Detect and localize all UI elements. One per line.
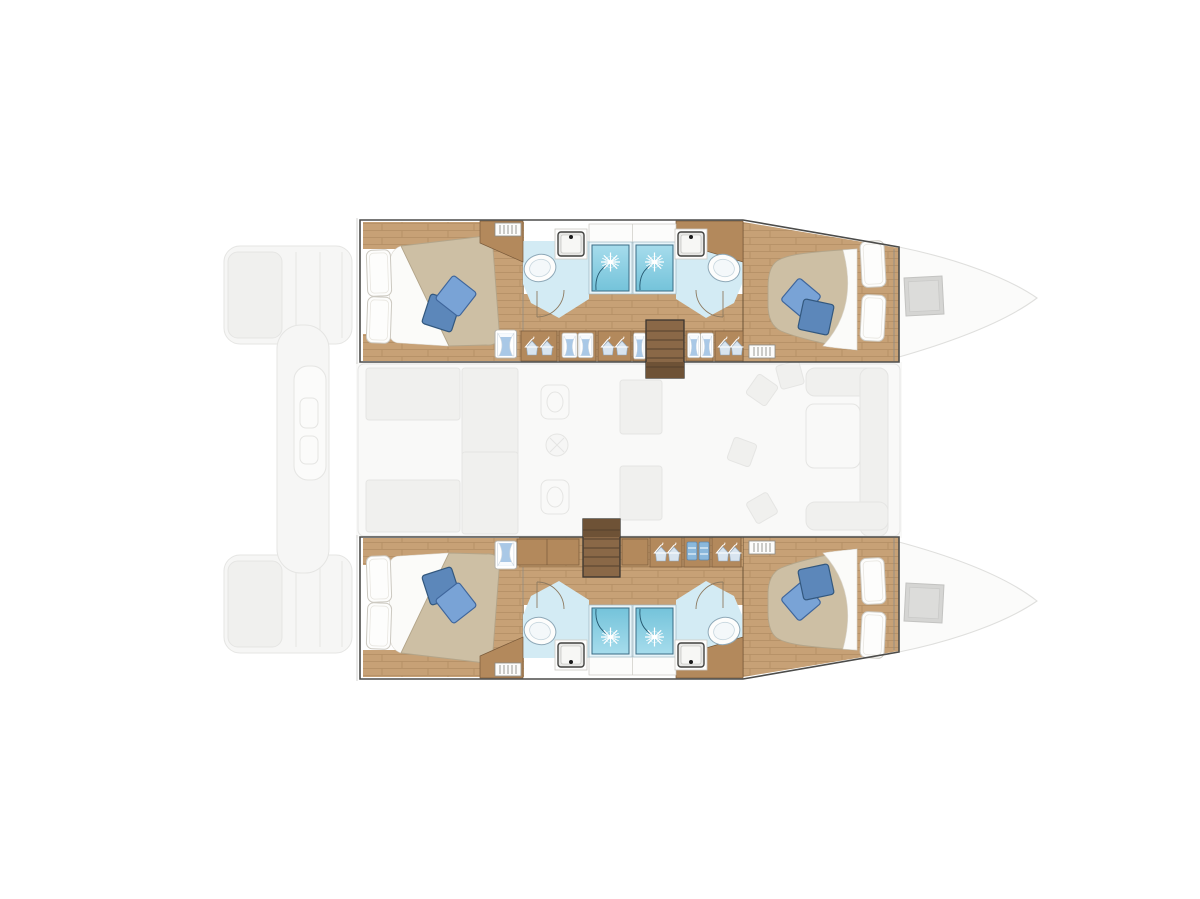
towel-stack-icon (699, 542, 709, 560)
galley-counter (366, 368, 460, 420)
deck-hatch (904, 276, 944, 316)
towel-stack-icon (687, 542, 697, 560)
catamaran-deck-plan (0, 0, 1200, 899)
bow-section (899, 542, 1037, 652)
dinette-sofa (806, 502, 888, 530)
deck-hatch (904, 583, 944, 623)
saloon-ghost (356, 360, 902, 538)
cockpit-lounge (277, 325, 329, 573)
window-portlight (578, 333, 593, 358)
wardrobe-strip (517, 537, 743, 567)
companionway-stairs (646, 320, 684, 378)
port-hull (357, 218, 899, 378)
companionway-stairs (583, 519, 620, 577)
wardrobe-strip (519, 331, 744, 361)
catamaran-deck-plan-page (0, 0, 1200, 899)
storage-shelf (622, 539, 648, 565)
storage-shelf (517, 539, 579, 565)
galley-counter (462, 368, 518, 456)
galley-counter (366, 480, 460, 532)
galley-counter (462, 452, 518, 534)
window-portlight (562, 333, 577, 358)
bow-section (899, 247, 1037, 357)
starboard-hull (357, 519, 899, 681)
window-portlight (688, 333, 701, 358)
window-portlight (634, 333, 646, 359)
window-portlight (701, 333, 714, 358)
